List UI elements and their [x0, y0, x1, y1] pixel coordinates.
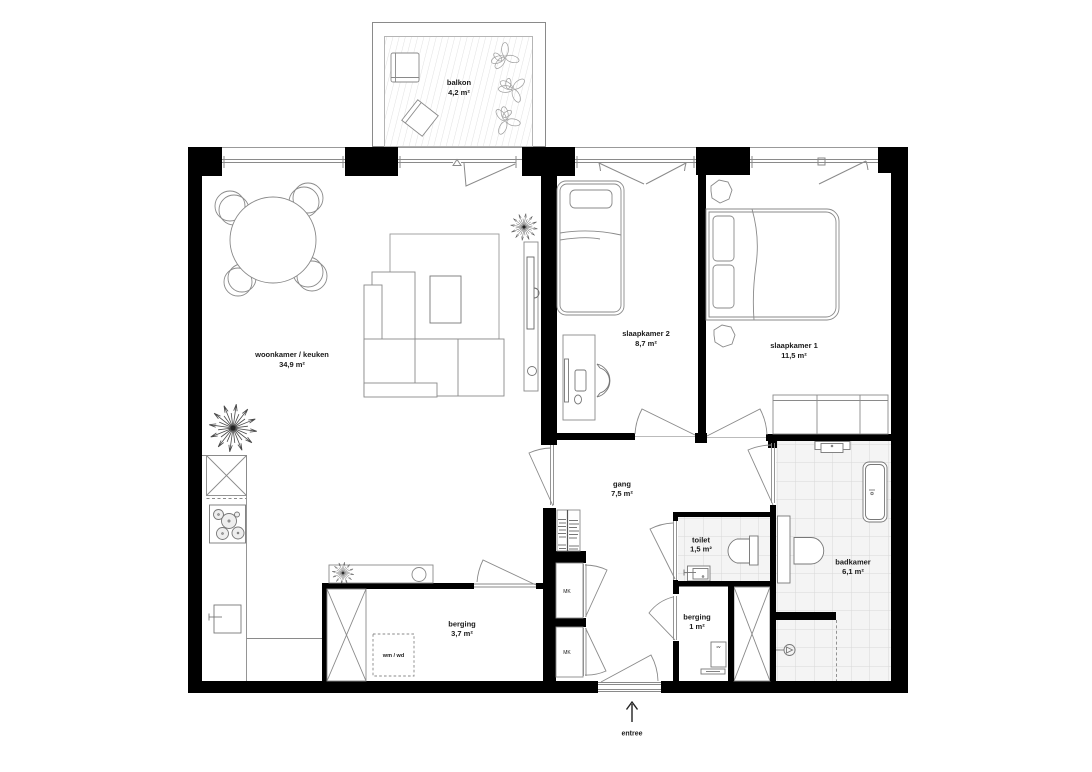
svg-text:gang: gang — [613, 480, 631, 489]
svg-text:wm / wd: wm / wd — [382, 653, 404, 659]
svg-text:woonkamer / keuken: woonkamer / keuken — [254, 350, 329, 359]
svg-text:cv: cv — [717, 644, 721, 649]
svg-text:7,5 m²: 7,5 m² — [611, 489, 633, 498]
svg-text:34,9 m²: 34,9 m² — [279, 360, 305, 369]
svg-text:toilet: toilet — [692, 536, 710, 545]
svg-text:entree: entree — [621, 731, 642, 738]
svg-text:MK: MK — [563, 589, 571, 595]
svg-text:3,7 m²: 3,7 m² — [451, 629, 473, 638]
svg-text:MK: MK — [563, 650, 571, 656]
svg-text:8,7 m²: 8,7 m² — [635, 339, 657, 348]
svg-text:berging: berging — [448, 620, 476, 629]
svg-text:4,2 m²: 4,2 m² — [448, 88, 470, 97]
svg-text:1 m²: 1 m² — [689, 622, 705, 631]
svg-text:11,5 m²: 11,5 m² — [781, 351, 807, 360]
svg-text:berging: berging — [683, 613, 711, 622]
svg-text:6,1 m²: 6,1 m² — [842, 567, 864, 576]
svg-text:1,5 m²: 1,5 m² — [690, 545, 712, 554]
svg-text:badkamer: badkamer — [835, 558, 871, 567]
svg-text:slaapkamer 1: slaapkamer 1 — [770, 341, 818, 350]
svg-text:slaapkamer 2: slaapkamer 2 — [622, 329, 670, 338]
svg-text:balkon: balkon — [447, 78, 472, 87]
